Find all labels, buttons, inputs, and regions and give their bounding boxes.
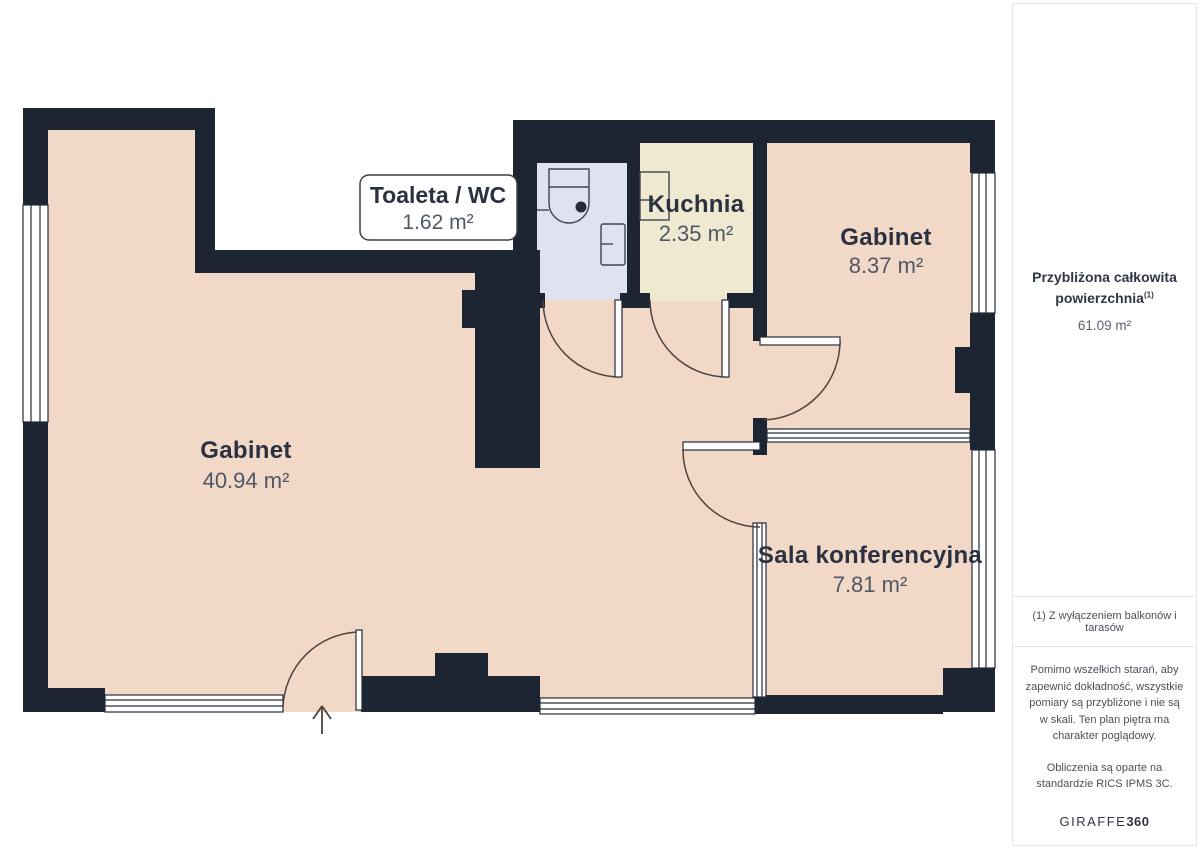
total-area-label: Przybliżona całkowita powierzchnia(1) — [1032, 267, 1177, 309]
total-area-label-line1: Przybliżona całkowita — [1032, 269, 1177, 285]
window-bottom-middle — [540, 698, 755, 714]
disclaimer-text: Pomimo wszelkich starań, aby zapewnić do… — [1025, 662, 1184, 745]
floorplan-page: Toaleta / WC 1.62 m² Kuchnia 2.35 m² Gab… — [0, 0, 1200, 849]
room-area-gabinet-maly: 8.37 m² — [849, 253, 924, 278]
glass-partition-horizontal — [767, 429, 970, 442]
total-area-label-line2: powierzchnia — [1055, 290, 1144, 306]
footnote-section: (1) Z wyłączeniem balkonów i tarasów — [1013, 596, 1196, 646]
callout-toaleta: Toaleta / WC 1.62 m² — [360, 175, 517, 240]
room-area-gabinet-duzy: 40.94 m² — [203, 468, 290, 493]
info-sidebar: Przybliżona całkowita powierzchnia(1) 61… — [1012, 3, 1197, 846]
room-name-kuchnia: Kuchnia — [648, 191, 745, 218]
total-area-section: Przybliżona całkowita powierzchnia(1) 61… — [1013, 4, 1196, 596]
room-name-gabinet-duzy: Gabinet — [200, 437, 291, 464]
floorplan-drawing: Toaleta / WC 1.62 m² Kuchnia 2.35 m² Gab… — [0, 0, 1012, 849]
room-area-toaleta: 1.62 m² — [402, 211, 473, 234]
total-area-value: 61.09 m² — [1078, 318, 1131, 333]
brand-suffix: 360 — [1126, 814, 1149, 829]
room-name-gabinet-maly: Gabinet — [840, 224, 931, 251]
standard-text: Obliczenia są oparte na standardzie RICS… — [1025, 760, 1184, 793]
legal-section: Pomimo wszelkich starań, aby zapewnić do… — [1013, 646, 1196, 845]
brand-name: GIRAFFE — [1059, 814, 1126, 829]
window-left — [23, 205, 48, 422]
giraffe360-logo: GIRAFFE360 — [1059, 812, 1149, 832]
window-right-top — [972, 173, 995, 313]
room-area-kuchnia: 2.35 m² — [659, 221, 734, 246]
total-area-footnote-marker: (1) — [1144, 290, 1154, 299]
room-name-toaleta: Toaleta / WC — [370, 182, 506, 208]
window-bottom-left — [105, 695, 283, 712]
room-area-sala: 7.81 m² — [833, 572, 908, 597]
room-name-sala: Sala konferencyjna — [758, 542, 983, 569]
